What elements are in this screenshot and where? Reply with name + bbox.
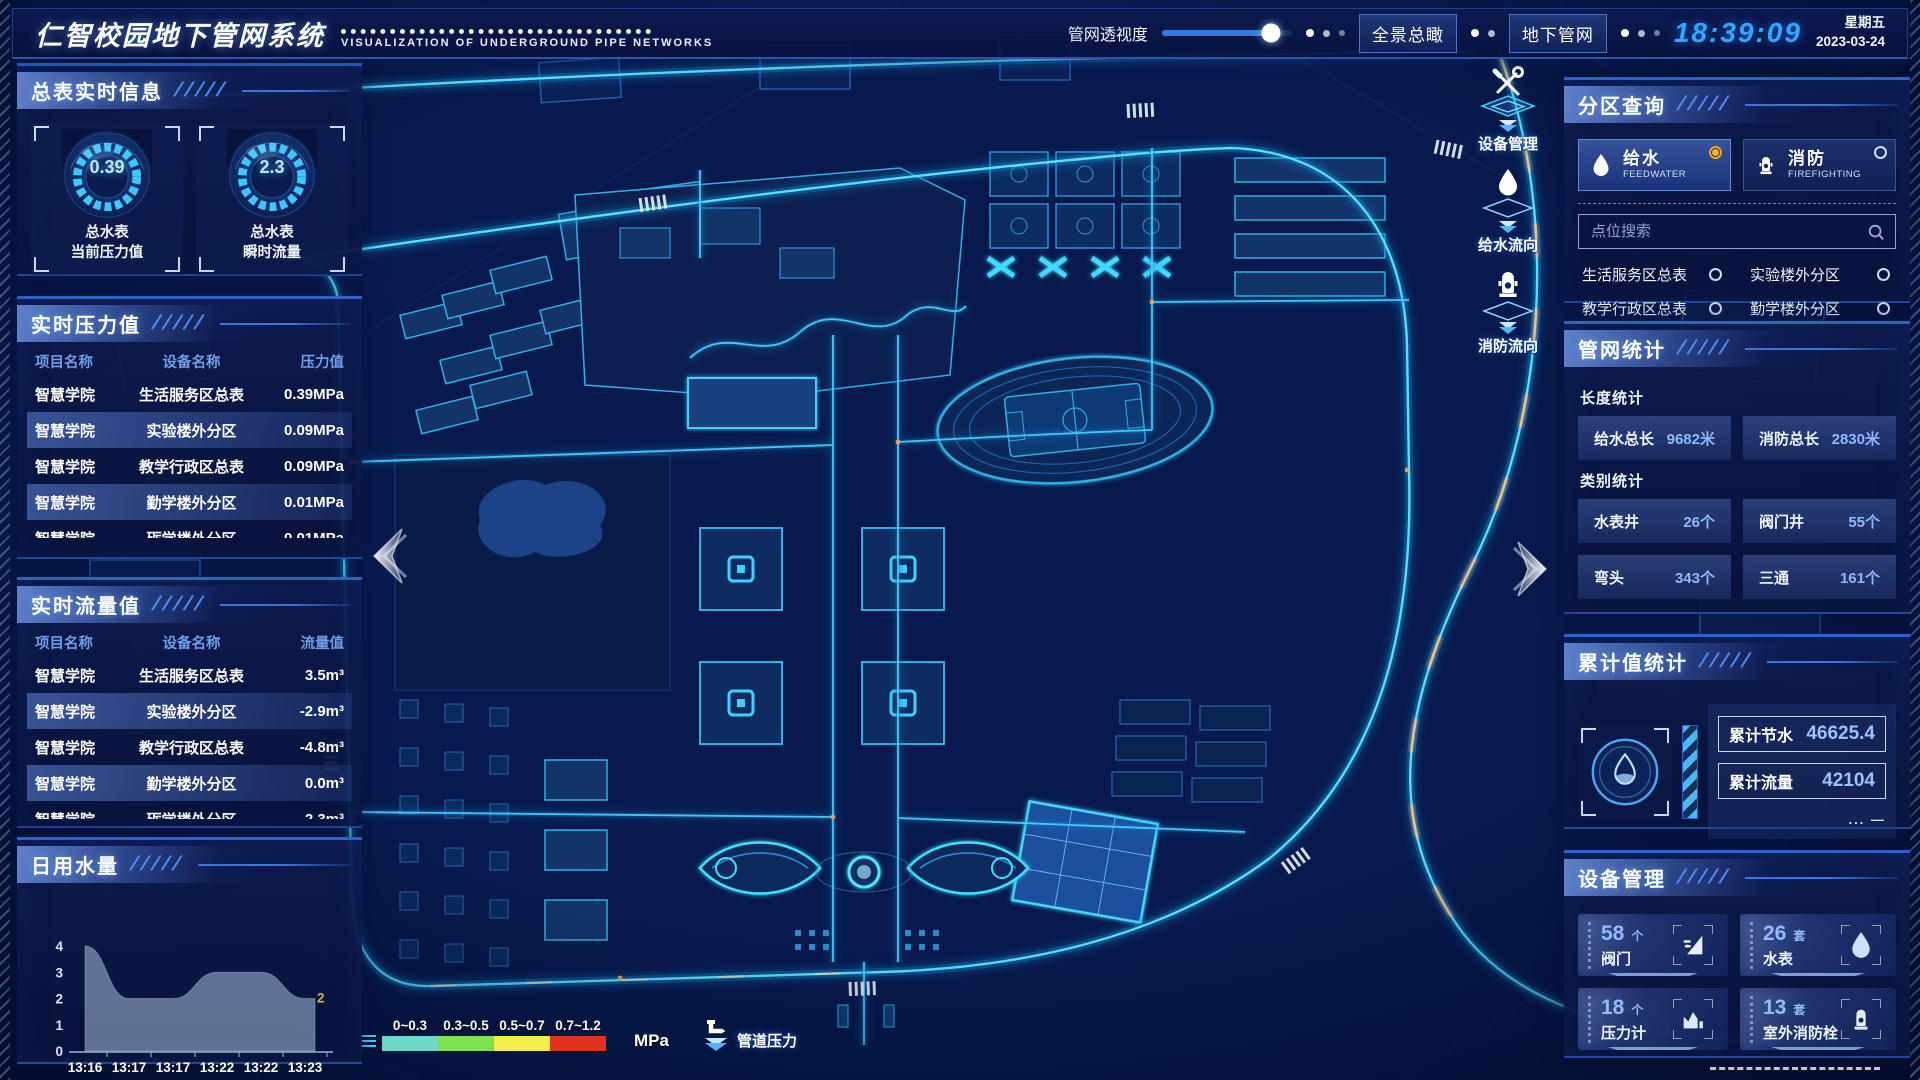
- corner-bracket: [330, 126, 345, 141]
- panel-title-bar: 累计值统计 /////: [1564, 643, 1910, 680]
- device-count: 26: [1763, 922, 1786, 946]
- pressure-table: 智慧学院生活服务区总表0.39MPa智慧学院实验楼外分区0.09MPa智慧学院教…: [27, 376, 352, 538]
- water-drop-icon: [1586, 733, 1664, 811]
- slider-fill: [1162, 30, 1271, 36]
- tab-feedwater[interactable]: 给水 FEEDWATER: [1578, 139, 1731, 191]
- corner-bracket: [1872, 925, 1881, 934]
- table-row[interactable]: 智慧学院砺学楼外分区2.3m³: [27, 801, 352, 819]
- date: 2023-03-24: [1816, 33, 1885, 52]
- stat-label: 消防总长: [1759, 428, 1819, 449]
- dots-decoration: [1306, 29, 1345, 37]
- water-saving-emblem: [1578, 725, 1672, 819]
- corner-bracket: [1704, 999, 1713, 1008]
- stat-box: 消防总长 2830米: [1743, 416, 1896, 460]
- dashed-divider: [1578, 203, 1896, 204]
- table-row[interactable]: 智慧学院实验楼外分区0.09MPa: [27, 412, 352, 448]
- stat-value: 42104: [1822, 770, 1875, 792]
- map-next-arrow[interactable]: [1512, 538, 1558, 605]
- pressure-panel: 实时压力值 ///// 项目名称 设备名称 压力值 智慧学院生活服务区总表0.3…: [17, 296, 362, 559]
- panel-title-bar: 设备管理 /////: [1564, 859, 1910, 896]
- panel-title: 累计值统计: [1578, 647, 1688, 676]
- cumulative-panel: 累计值统计 ///// 累计节水 46625.4 累计流量: [1564, 634, 1910, 829]
- slider-thumb[interactable]: [1262, 24, 1281, 43]
- table-cell: 实验楼外分区: [131, 701, 252, 722]
- table-header: 项目名称 设备名称 压力值: [27, 346, 352, 376]
- gauge-value: 0.39: [59, 157, 155, 178]
- legend-range: 0.5~0.7: [499, 1018, 544, 1033]
- stat-value: 2830米: [1832, 428, 1880, 449]
- device-card-water-meters[interactable]: 26套 水表: [1740, 914, 1896, 976]
- corner-bracket: [199, 126, 214, 141]
- panel-title-bar: 实时压力值 /////: [17, 305, 362, 342]
- overview-button[interactable]: 全景总瞰: [1359, 14, 1457, 53]
- corner-bracket: [1841, 956, 1850, 965]
- table-row[interactable]: 智慧学院教学行政区总表0.09MPa: [27, 448, 352, 484]
- panel-title: 总表实时信息: [31, 76, 163, 105]
- device-card-valves[interactable]: 58个 阀门: [1578, 914, 1728, 976]
- water-meter-icon: [1838, 922, 1884, 968]
- corner-bracket: [1841, 925, 1850, 934]
- stat-label: 累计节水: [1729, 722, 1793, 746]
- water-drop-icon: [1589, 153, 1613, 177]
- legend-segment: 0~0.3: [382, 1018, 438, 1051]
- stat-value: 55个: [1848, 511, 1880, 532]
- stat-box: 给水总长 9682米: [1578, 416, 1731, 460]
- daily-water-panel: 日用水量 ///// 0123413:1613:1713:1713:2213:2…: [17, 837, 362, 1064]
- gauge-label: 总水表: [71, 223, 144, 243]
- column-header: 设备名称: [131, 351, 252, 372]
- corner-bracket: [165, 126, 180, 141]
- legend-segment: 0.3~0.5: [438, 1018, 494, 1051]
- column-header: 设备名称: [131, 632, 252, 653]
- table-cell: 砺学楼外分区: [131, 528, 252, 539]
- corner-bracket: [1673, 956, 1682, 965]
- tab-firefighting[interactable]: 消防 FIREFIGHTING: [1743, 139, 1896, 191]
- svg-text:0: 0: [55, 1044, 63, 1059]
- table-cell: 勤学楼外分区: [131, 773, 252, 794]
- corner-bracket: [165, 257, 180, 272]
- zone-option[interactable]: 生活服务区总表: [1578, 257, 1728, 291]
- table-cell: 勤学楼外分区: [131, 492, 252, 513]
- stat-value: 161个: [1840, 567, 1880, 588]
- panel-title-bar: 日用水量 /////: [17, 846, 362, 883]
- table-cell: 智慧学院: [35, 701, 131, 722]
- zone-option-label: 生活服务区总表: [1582, 264, 1687, 285]
- table-cell: 智慧学院: [35, 737, 131, 758]
- panel-title-bar: 管网统计 /////: [1564, 330, 1910, 367]
- panel-title-bar: 总表实时信息 /////: [17, 72, 362, 109]
- left-edge-decoration: [0, 0, 10, 1080]
- corner-bracket: [1704, 925, 1713, 934]
- cumulative-saving-box: 累计节水 46625.4: [1718, 716, 1886, 752]
- stat-value: 343个: [1675, 567, 1715, 588]
- device-count: 18: [1601, 996, 1624, 1020]
- title-line: [198, 864, 350, 866]
- table-cell: 生活服务区总表: [131, 384, 252, 405]
- radio-icon[interactable]: [1709, 302, 1722, 315]
- device-unit: 套: [1793, 927, 1805, 944]
- zone-option[interactable]: 实验楼外分区: [1746, 257, 1896, 291]
- gauge-card-pressure: 0.39 总水表 当前压力值: [31, 123, 183, 275]
- radio-icon[interactable]: [1877, 302, 1890, 315]
- svg-text:13:17: 13:17: [112, 1060, 147, 1073]
- slashes-decoration: /////: [1675, 337, 1734, 360]
- svg-text:2: 2: [317, 991, 325, 1006]
- table-cell: 智慧学院: [35, 456, 131, 477]
- corner-bracket: [199, 257, 214, 272]
- corner-dashes-decoration: [1710, 1067, 1880, 1070]
- chevron-down-icon: [1499, 327, 1517, 334]
- column-header: 项目名称: [35, 632, 131, 653]
- daily-water-chart: 0123413:1613:1713:1713:2213:2213:232: [23, 885, 353, 1073]
- table-row[interactable]: 智慧学院勤学楼外分区0.0m³: [27, 765, 352, 801]
- table-cell: 生活服务区总表: [131, 665, 252, 686]
- corner-bracket: [1581, 801, 1596, 816]
- top-header: 仁智校园地下管网系统 VISUALIZATION OF UNDERGROUND …: [12, 8, 1908, 59]
- zone-option[interactable]: 教学行政区总表: [1578, 291, 1728, 325]
- device-label: 水表: [1763, 948, 1805, 969]
- chevron-down-icon: [1499, 226, 1517, 233]
- slashes-decoration: /////: [128, 853, 187, 876]
- legend-range: 0~0.3: [393, 1018, 427, 1033]
- toolbar-feedwater-flow[interactable]: 给水流向: [1478, 167, 1538, 255]
- pipe-stats-panel: 管网统计 ///// 长度统计 给水总长 9682米 消防总长 2830米 类别…: [1564, 321, 1910, 614]
- corner-bracket: [1841, 999, 1850, 1008]
- corner-bracket: [1872, 956, 1881, 965]
- wrench-icon: [1478, 64, 1538, 122]
- underground-button[interactable]: 地下管网: [1509, 14, 1607, 53]
- transparency-label: 管网透视度: [1068, 21, 1148, 45]
- slashes-decoration: /////: [1675, 93, 1734, 116]
- chevron-down-icon: [1499, 125, 1517, 132]
- table-row[interactable]: 智慧学院生活服务区总表3.5m³: [27, 657, 352, 693]
- slashes-decoration: /////: [172, 79, 231, 102]
- toolbar-device-management[interactable]: 设备管理: [1478, 64, 1538, 154]
- corner-bracket: [1704, 1030, 1713, 1039]
- corner-bracket: [1673, 925, 1682, 934]
- weekday: 星期五: [1816, 14, 1885, 33]
- point-search[interactable]: [1578, 214, 1896, 249]
- stripe-decoration: [1682, 725, 1698, 819]
- table-cell: 0.01MPa: [252, 494, 344, 511]
- device-management-panel: 设备管理 ///// 58个 阀门 26套 水表: [1564, 850, 1910, 1058]
- flow-table: 智慧学院生活服务区总表3.5m³智慧学院实验楼外分区-2.9m³智慧学院教学行政…: [27, 657, 352, 819]
- table-cell: 实验楼外分区: [131, 420, 252, 441]
- table-cell: 教学行政区总表: [131, 456, 252, 477]
- pressure-gauge-icon: [1670, 996, 1716, 1042]
- title-line: [1767, 661, 1898, 663]
- toolbar-label: 给水流向: [1478, 234, 1538, 255]
- table-cell: 智慧学院: [35, 809, 131, 820]
- radio-icon[interactable]: [1874, 146, 1887, 159]
- hydrant-icon: [1478, 268, 1538, 324]
- column-header: 项目名称: [35, 351, 131, 372]
- table-cell: 0.09MPa: [252, 458, 344, 475]
- table-cell: 智慧学院: [35, 528, 131, 539]
- corner-bracket: [1704, 956, 1713, 965]
- right-edge-decoration: [1910, 0, 1920, 1080]
- slashes-decoration: /////: [150, 593, 209, 616]
- clock: 18:39:09: [1674, 17, 1802, 49]
- corner-bracket: [1841, 1030, 1850, 1039]
- panel-title: 实时流量值: [31, 590, 141, 619]
- category-section-label: 类别统计: [1580, 470, 1896, 491]
- device-label: 室外消防栓: [1763, 1022, 1838, 1043]
- legend-segment: 0.5~0.7: [494, 1018, 550, 1051]
- stat-box: 弯头 343个: [1578, 555, 1731, 599]
- master-info-panel: 总表实时信息 ///// 0.39: [17, 63, 362, 276]
- app-subtitle: VISUALIZATION OF UNDERGROUND PIPE NETWOR…: [341, 37, 713, 49]
- table-cell: -4.8m³: [252, 739, 344, 756]
- legend-segment: 0.7~1.2: [550, 1018, 606, 1051]
- legend-label: 管道压力: [737, 1030, 797, 1051]
- stat-label: 累计流量: [1729, 769, 1793, 793]
- title-line: [220, 604, 350, 606]
- svg-text:2: 2: [55, 992, 63, 1007]
- search-icon[interactable]: [1867, 223, 1885, 241]
- water-drop-icon: [1478, 167, 1538, 223]
- radio-icon[interactable]: [1709, 268, 1722, 281]
- svg-text:4: 4: [55, 939, 63, 954]
- tab-sublabel: FEEDWATER: [1623, 169, 1686, 180]
- title-line: [1745, 348, 1898, 350]
- title-line: [220, 323, 350, 325]
- title-line: [242, 90, 350, 92]
- table-row[interactable]: 智慧学院砺学楼外分区0.01MPa: [27, 520, 352, 538]
- legend-range: 0.7~1.2: [555, 1018, 600, 1033]
- toolbar-firefighting-flow[interactable]: 消防流向: [1478, 268, 1538, 356]
- chevron-down-icon: [705, 1043, 727, 1051]
- dots-decoration: [341, 29, 651, 34]
- table-cell: 智慧学院: [35, 665, 131, 686]
- panel-title-bar: 分区查询 /////: [1564, 86, 1910, 123]
- stat-label: 阀门井: [1759, 511, 1804, 532]
- zone-option-label: 实验楼外分区: [1750, 264, 1840, 285]
- table-row[interactable]: 智慧学院教学行政区总表-4.8m³: [27, 729, 352, 765]
- dots-decoration: [1621, 29, 1660, 37]
- flow-panel: 实时流量值 ///// 项目名称 设备名称 流量值 智慧学院生活服务区总表3.5…: [17, 577, 362, 828]
- stat-label: 水表井: [1594, 511, 1639, 532]
- stat-value: 26个: [1683, 511, 1715, 532]
- pressure-legend: 0~0.3 0.3~0.5 0.5~0.7 0.7~1.2 MPa 管道压力: [360, 1018, 797, 1051]
- device-unit: 个: [1631, 1001, 1643, 1018]
- table-cell: -2.9m³: [252, 703, 344, 720]
- panel-title: 实时压力值: [31, 309, 141, 338]
- device-count: 13: [1763, 996, 1786, 1020]
- svg-text:1: 1: [55, 1018, 63, 1033]
- legend-range: 0.3~0.5: [443, 1018, 488, 1033]
- corner-bracket: [1654, 801, 1669, 816]
- stat-label: 三通: [1759, 567, 1789, 588]
- corner-bracket: [1872, 1030, 1881, 1039]
- table-cell: 教学行政区总表: [131, 737, 252, 758]
- corner-bracket: [1581, 728, 1596, 743]
- table-cell: 0.01MPa: [252, 530, 344, 539]
- device-card-pressure-gauges[interactable]: 18个 压力计: [1578, 988, 1728, 1050]
- panel-title: 设备管理: [1578, 863, 1666, 892]
- device-card-hydrants[interactable]: 13套 室外消防栓: [1740, 988, 1896, 1050]
- stat-value: 9682米: [1667, 428, 1715, 449]
- table-row[interactable]: 智慧学院实验楼外分区-2.9m³: [27, 693, 352, 729]
- stat-box: 水表井 26个: [1578, 499, 1731, 543]
- stat-box: 三通 161个: [1743, 555, 1896, 599]
- zone-option[interactable]: 勤学楼外分区: [1746, 291, 1896, 325]
- toolbar-label: 设备管理: [1478, 133, 1538, 154]
- cumulative-flow-box: 累计流量 42104: [1718, 763, 1886, 799]
- title-line: [1745, 104, 1898, 106]
- tab-label: 给水: [1623, 150, 1686, 169]
- table-cell: 0.39MPa: [252, 386, 344, 403]
- table-cell: 0.09MPa: [252, 422, 344, 439]
- svg-text:3: 3: [55, 965, 63, 980]
- title-line: [1745, 877, 1898, 879]
- gauge-value: 2.3: [224, 157, 320, 178]
- transparency-slider[interactable]: [1162, 30, 1292, 36]
- dots-decoration: ... —: [1718, 812, 1886, 827]
- zone-query-panel: 分区查询 ///// 给水 FEEDWATER 消防 FIREFIGHTING: [1564, 77, 1910, 303]
- table-cell: 智慧学院: [35, 492, 131, 513]
- legend-color-swatch: [550, 1036, 606, 1051]
- table-cell: 智慧学院: [35, 773, 131, 794]
- device-label: 压力计: [1601, 1022, 1646, 1043]
- table-cell: 砺学楼外分区: [131, 809, 252, 820]
- table-row[interactable]: 智慧学院勤学楼外分区0.01MPa: [27, 484, 352, 520]
- app-title: 仁智校园地下管网系统: [35, 14, 325, 53]
- map-layer-toolbar: 设备管理 给水流向 消防流向: [1462, 64, 1554, 356]
- column-header: 流量值: [252, 632, 344, 653]
- panel-title: 管网统计: [1578, 334, 1666, 363]
- table-header: 项目名称 设备名称 流量值: [27, 627, 352, 657]
- corner-bracket: [34, 126, 49, 141]
- table-cell: 2.3m³: [252, 811, 344, 820]
- radio-selected-icon[interactable]: [1709, 146, 1722, 159]
- pipe-pressure-icon[interactable]: [703, 1019, 729, 1051]
- device-label: 阀门: [1601, 948, 1643, 969]
- slashes-decoration: /////: [1675, 866, 1734, 889]
- legend-color-swatch: [494, 1036, 550, 1051]
- device-count: 58: [1601, 922, 1624, 946]
- stat-box: 阀门井 55个: [1743, 499, 1896, 543]
- table-row[interactable]: 智慧学院生活服务区总表0.39MPa: [27, 376, 352, 412]
- gauge-label: 总水表: [243, 223, 301, 243]
- legend-unit: MPa: [634, 1031, 669, 1051]
- svg-text:13:17: 13:17: [156, 1060, 191, 1073]
- corner-bracket: [1872, 999, 1881, 1008]
- gauge-card-flow: 2.3 总水表 瞬时流量: [196, 123, 348, 275]
- legend-ticks-decoration: [360, 1035, 376, 1047]
- tab-label: 消防: [1788, 150, 1861, 169]
- hydrant-icon: [1838, 996, 1884, 1042]
- zone-option-label: 勤学楼外分区: [1750, 298, 1840, 319]
- corner-bracket: [1654, 728, 1669, 743]
- svg-text:13:23: 13:23: [288, 1060, 323, 1073]
- device-unit: 套: [1793, 1001, 1805, 1018]
- legend-color-swatch: [438, 1036, 494, 1051]
- panel-title-bar: 实时流量值 /////: [17, 586, 362, 623]
- corner-bracket: [34, 257, 49, 272]
- svg-text:13:16: 13:16: [68, 1060, 103, 1073]
- tab-sublabel: FIREFIGHTING: [1788, 169, 1861, 180]
- toolbar-label: 消防流向: [1478, 335, 1538, 356]
- column-header: 压力值: [252, 351, 344, 372]
- slashes-decoration: /////: [1697, 650, 1756, 673]
- corner-bracket: [330, 257, 345, 272]
- valve-icon: [1670, 922, 1716, 968]
- corner-bracket: [1673, 1030, 1682, 1039]
- svg-text:13:22: 13:22: [200, 1060, 235, 1073]
- gauge-label: 瞬时流量: [243, 243, 301, 263]
- panel-title: 日用水量: [31, 850, 119, 879]
- map-prev-arrow[interactable]: [362, 525, 408, 592]
- table-cell: 智慧学院: [35, 384, 131, 405]
- corner-bracket: [1673, 999, 1682, 1008]
- table-cell: 0.0m³: [252, 775, 344, 792]
- hydrant-icon: [1754, 153, 1778, 177]
- panel-title: 分区查询: [1578, 90, 1666, 119]
- stat-value: 46625.4: [1806, 723, 1875, 745]
- dots-decoration: [1471, 29, 1495, 37]
- length-section-label: 长度统计: [1580, 387, 1896, 408]
- gauge-label: 当前压力值: [71, 243, 144, 263]
- slashes-decoration: /////: [150, 312, 209, 335]
- legend-color-swatch: [382, 1036, 438, 1051]
- svg-text:13:22: 13:22: [244, 1060, 279, 1073]
- zone-option-label: 教学行政区总表: [1582, 298, 1687, 319]
- device-unit: 个: [1631, 927, 1643, 944]
- radio-icon[interactable]: [1877, 268, 1890, 281]
- search-input[interactable]: [1589, 222, 1867, 241]
- table-cell: 3.5m³: [252, 667, 344, 684]
- stat-label: 给水总长: [1594, 428, 1654, 449]
- table-cell: 智慧学院: [35, 420, 131, 441]
- stat-label: 弯头: [1594, 567, 1624, 588]
